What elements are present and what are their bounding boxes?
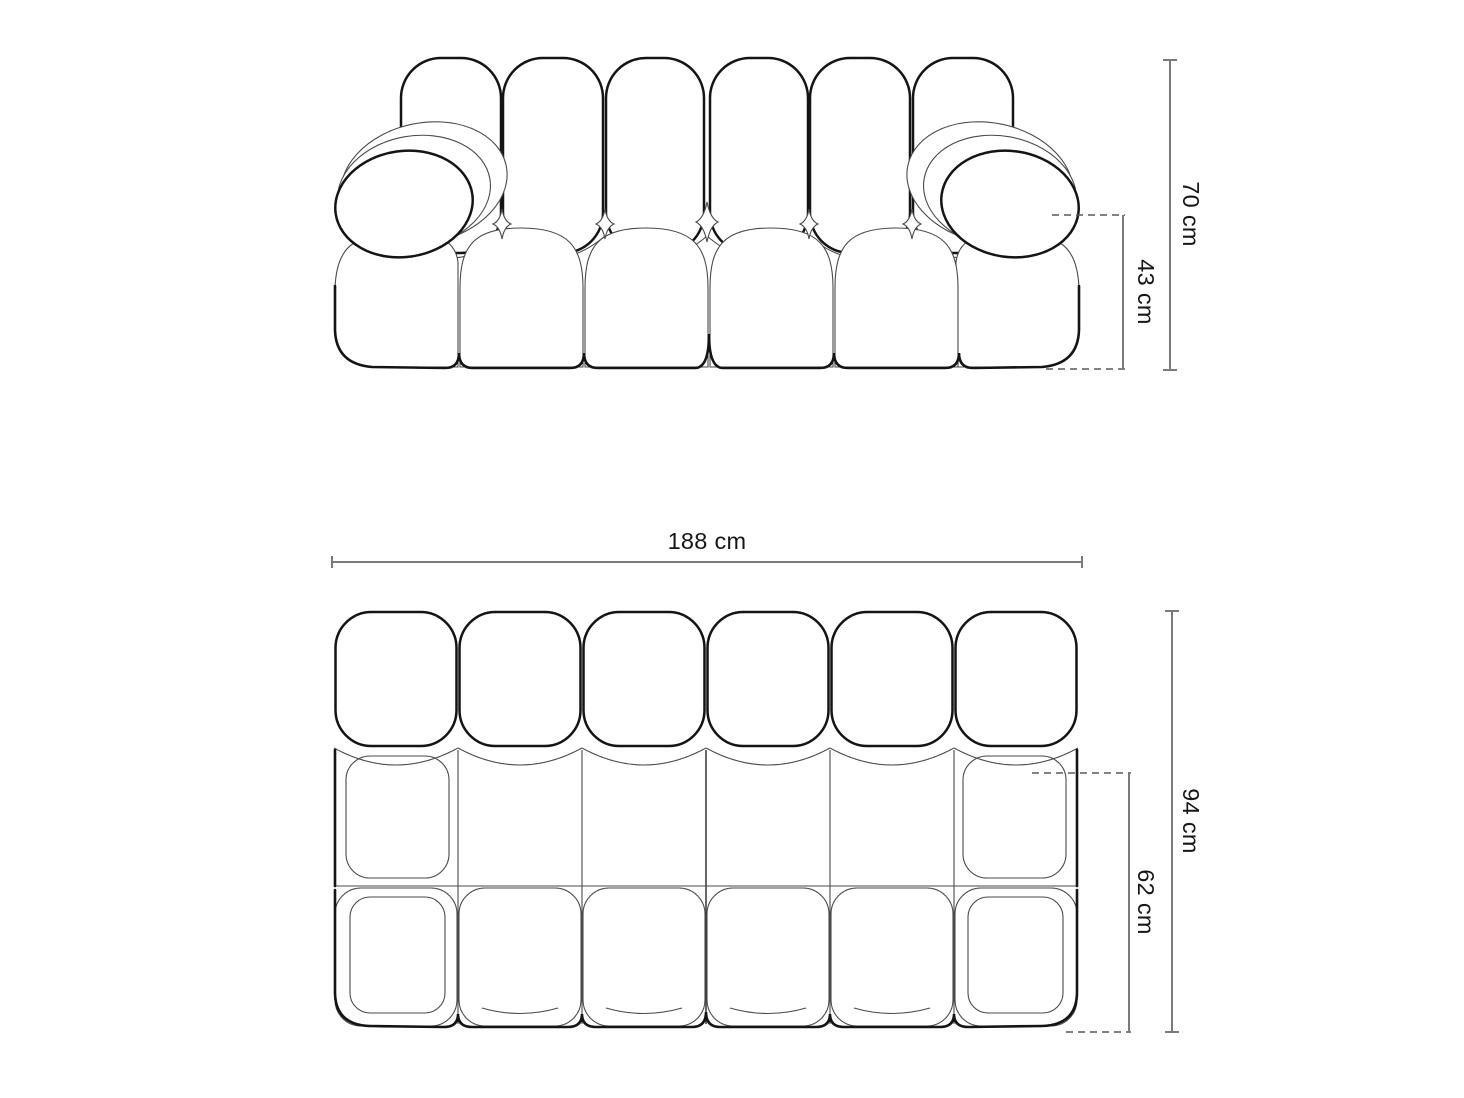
dimension-total-height: 70 cm [1163, 60, 1204, 370]
top-front-module [831, 888, 953, 1026]
top-front-module [335, 888, 457, 1026]
back-cushion [503, 58, 603, 253]
dimension-total-depth: 94 cm [1165, 611, 1204, 1032]
top-backrest-module [336, 612, 457, 746]
seat-cushion [460, 228, 583, 367]
seat-cushion [835, 228, 958, 367]
dimension-label-total-depth: 94 cm [1178, 788, 1204, 854]
front-module-crease [730, 1008, 806, 1014]
back-cushion [606, 58, 704, 253]
dimension-seat-depth: 62 cm [1032, 773, 1159, 1032]
top-backrest-module [584, 612, 705, 746]
front-module-crease [482, 1008, 558, 1014]
top-front-module [459, 888, 581, 1026]
dimension-label-seat-height: 43 cm [1133, 259, 1159, 325]
dimension-total-width: 188 cm [332, 528, 1082, 568]
scallop-seam [458, 748, 582, 765]
front-module-crease [606, 1008, 682, 1014]
top-backrest-module [460, 612, 581, 746]
armrest-contour-left [346, 756, 449, 878]
top-front-module [707, 888, 829, 1026]
sofa-dimensions-diagram: 70 cm 43 cm 188 cm [0, 0, 1464, 1098]
dimension-label-total-height: 70 cm [1178, 181, 1204, 247]
armrest-nested-contour-left [350, 897, 445, 1013]
armrest-contour-right [963, 756, 1066, 878]
seat-cushion [585, 228, 708, 367]
diagram-svg: 70 cm 43 cm 188 cm [0, 0, 1464, 1098]
scallop-seam [706, 748, 830, 765]
sofa-top-view [334, 612, 1078, 1027]
front-module-crease [854, 1008, 930, 1014]
top-division-seams [336, 750, 1076, 1024]
scallop-seam [582, 748, 706, 765]
scallop-seam [830, 748, 954, 765]
top-backrest-module [832, 612, 953, 746]
dimension-label-seat-depth: 62 cm [1133, 869, 1159, 935]
armrest-nested-contour-right [968, 897, 1063, 1013]
dimension-label-total-width: 188 cm [668, 528, 747, 554]
top-backrest-module [708, 612, 829, 746]
top-front-module [583, 888, 705, 1026]
back-cushion [710, 58, 808, 253]
sofa-front-view [328, 58, 1085, 368]
seat-cushion [710, 228, 833, 367]
top-backrest-row [336, 612, 1077, 746]
top-backrest-module [956, 612, 1077, 746]
back-cushion [810, 58, 910, 253]
